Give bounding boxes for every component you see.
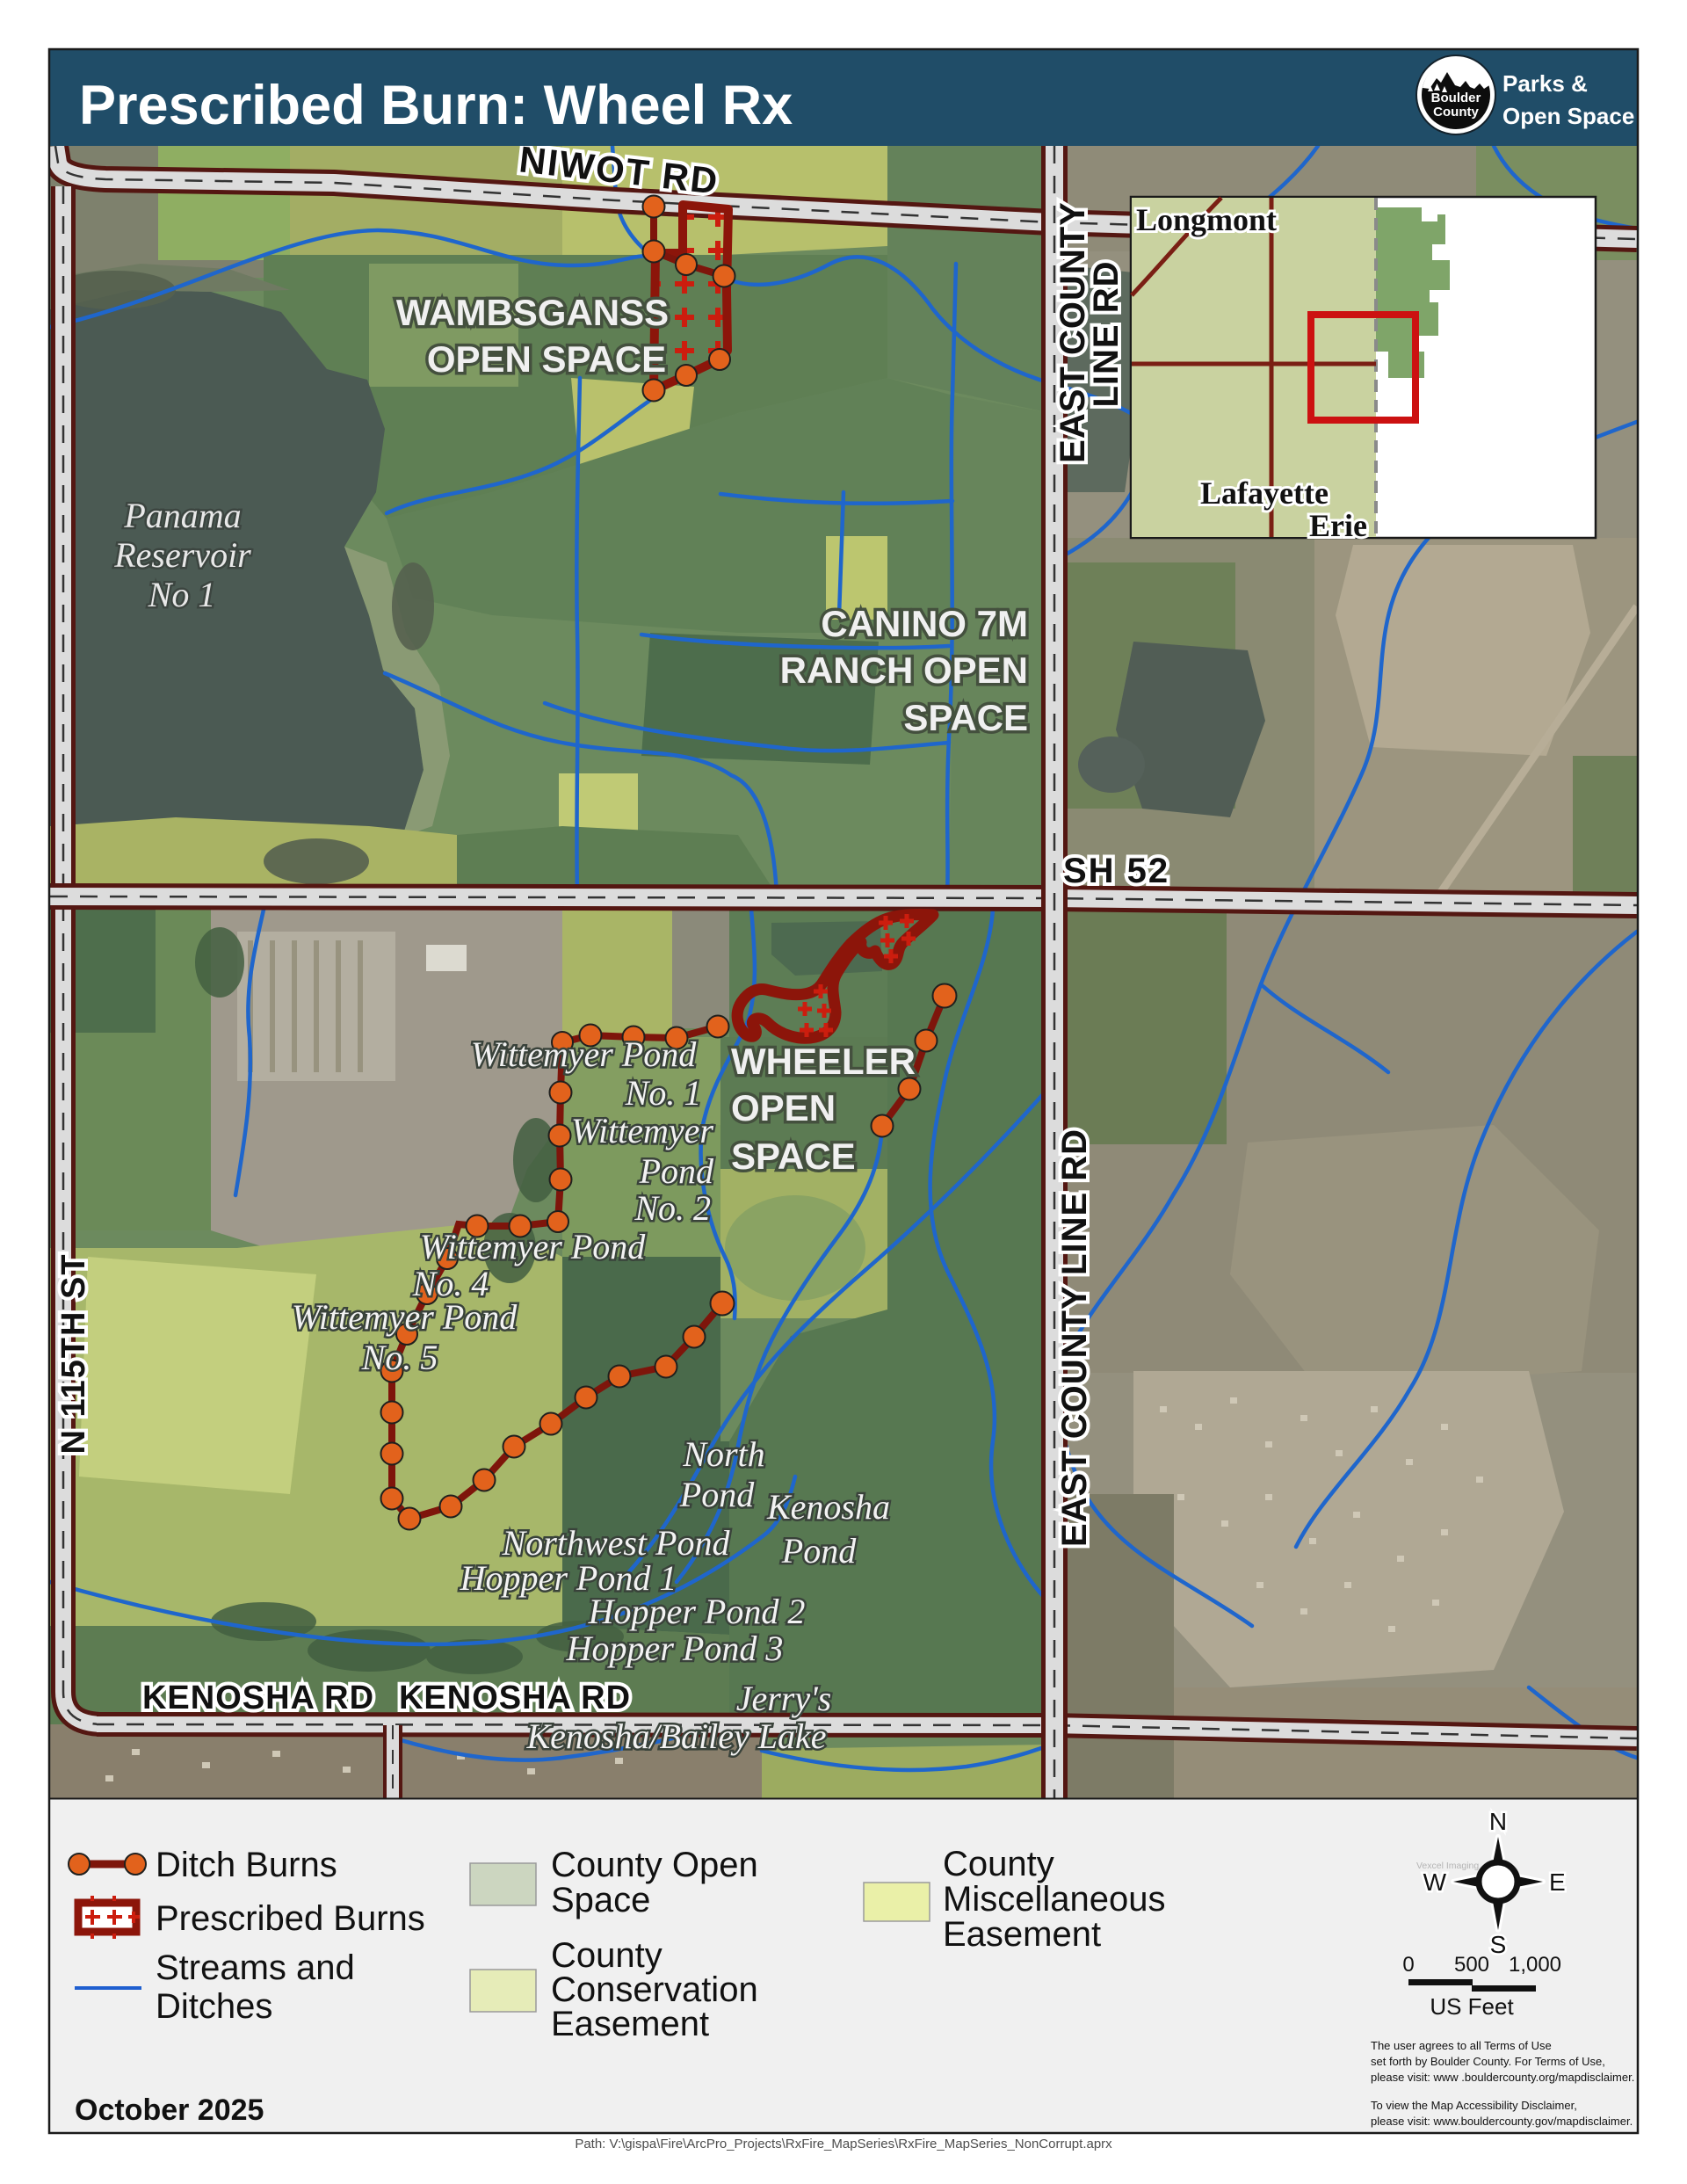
svg-text:0: 0 [1402,1953,1414,1977]
svg-text:Wittemyer Pond: Wittemyer Pond [292,1297,518,1337]
svg-text:US Feet: US Feet [1430,1993,1514,2020]
svg-text:SPACE: SPACE [731,1136,856,1177]
svg-text:Ditch Burns: Ditch Burns [156,1846,337,1884]
svg-text:Streams and: Streams and [156,1948,355,1987]
svg-text:KENOSHA RD: KENOSHA RD [399,1680,631,1716]
svg-text:North: North [682,1434,764,1474]
svg-text:please visit: www.bouldercount: please visit: www.bouldercounty.gov/mapd… [1371,2115,1633,2128]
svg-text:Path: V:\gispa\Fire\ArcPro_Pro: Path: V:\gispa\Fire\ArcPro_Projects\RxFi… [575,2137,1112,2151]
svg-text:please visit: www .bouldercoun: please visit: www .bouldercounty.org/map… [1371,2071,1634,2084]
svg-text:W: W [1423,1868,1447,1896]
svg-text:S: S [1490,1931,1507,1958]
svg-text:500: 500 [1454,1953,1489,1977]
svg-text:Reservoir: Reservoir [113,535,251,575]
svg-text:OPEN SPACE: OPEN SPACE [427,338,666,380]
svg-text:Wittemyer Pond: Wittemyer Pond [471,1034,698,1074]
svg-text:RANCH OPEN: RANCH OPEN [780,649,1028,691]
svg-text:Parks &: Parks & [1502,70,1588,97]
svg-text:WAMBSGANSS: WAMBSGANSS [396,292,669,333]
svg-text:Prescribed Burns: Prescribed Burns [156,1899,425,1938]
svg-text:Wittemyer: Wittemyer [571,1111,714,1150]
svg-text:Space: Space [551,1881,650,1919]
svg-text:Open Space: Open Space [1502,103,1634,129]
svg-text:To view the Map Accessibility: To view the Map Accessibility Disclaimer… [1371,2099,1577,2112]
svg-text:Wittemyer Pond: Wittemyer Pond [420,1227,647,1266]
svg-text:Hopper Pond 2: Hopper Pond 2 [588,1592,806,1631]
svg-text:Ditches: Ditches [156,1987,272,2026]
svg-text:OPEN: OPEN [731,1087,836,1128]
svg-text:County Open: County Open [551,1846,758,1884]
svg-text:Hopper Pond 3: Hopper Pond 3 [566,1629,784,1668]
svg-text:CANINO 7M: CANINO 7M [821,603,1028,644]
svg-text:1,000: 1,000 [1509,1953,1561,1977]
svg-text:SPACE: SPACE [903,697,1028,738]
svg-text:Erie: Erie [1309,508,1367,543]
svg-text:Kenosha: Kenosha [766,1487,890,1527]
svg-text:No 1: No 1 [148,575,216,614]
svg-text:No. 1: No. 1 [625,1073,702,1113]
svg-text:Pond: Pond [679,1475,755,1514]
svg-text:October 2025: October 2025 [75,2093,264,2127]
svg-text:LINE RD: LINE RD [1087,261,1126,408]
svg-text:N 115TH ST: N 115TH ST [55,1252,92,1454]
svg-text:Prescribed Burn: Wheel Rx: Prescribed Burn: Wheel Rx [79,75,793,136]
svg-text:County: County [551,1936,662,1975]
svg-text:Panama: Panama [123,496,241,535]
svg-text:Northwest Pond: Northwest Pond [502,1523,731,1563]
svg-text:The user agrees to all Terms o: The user agrees to all Terms of Use [1371,2039,1552,2052]
svg-text:EAST COUNTY LINE RD: EAST COUNTY LINE RD [1055,1128,1094,1547]
svg-text:E: E [1549,1868,1566,1896]
svg-text:Longmont: Longmont [1136,202,1277,237]
svg-text:KENOSHA RD: KENOSHA RD [142,1680,374,1716]
svg-text:Easement: Easement [551,2005,709,2043]
svg-text:No. 5: No. 5 [361,1338,438,1377]
svg-text:No. 2: No. 2 [634,1188,711,1228]
svg-text:Kenosha/Bailey Lake: Kenosha/Bailey Lake [525,1716,826,1756]
svg-text:Pond: Pond [781,1531,857,1571]
svg-text:Conservation: Conservation [551,1970,758,2009]
svg-text:County: County [1433,105,1479,120]
svg-text:Boulder: Boulder [1431,91,1481,105]
svg-text:WHEELER: WHEELER [731,1041,916,1082]
svg-text:Miscellaneous: Miscellaneous [943,1880,1165,1919]
svg-text:County: County [943,1845,1054,1883]
svg-text:SH 52: SH 52 [1063,852,1169,890]
svg-text:N: N [1489,1808,1507,1835]
svg-text:set forth by Boulder County.: set forth by Boulder County. For Terms o… [1371,2055,1605,2068]
svg-text:Lafayette: Lafayette [1200,475,1329,511]
svg-text:Pond: Pond [639,1151,714,1191]
svg-text:Jerry's: Jerry's [736,1679,832,1718]
svg-text:Easement: Easement [943,1915,1101,1954]
